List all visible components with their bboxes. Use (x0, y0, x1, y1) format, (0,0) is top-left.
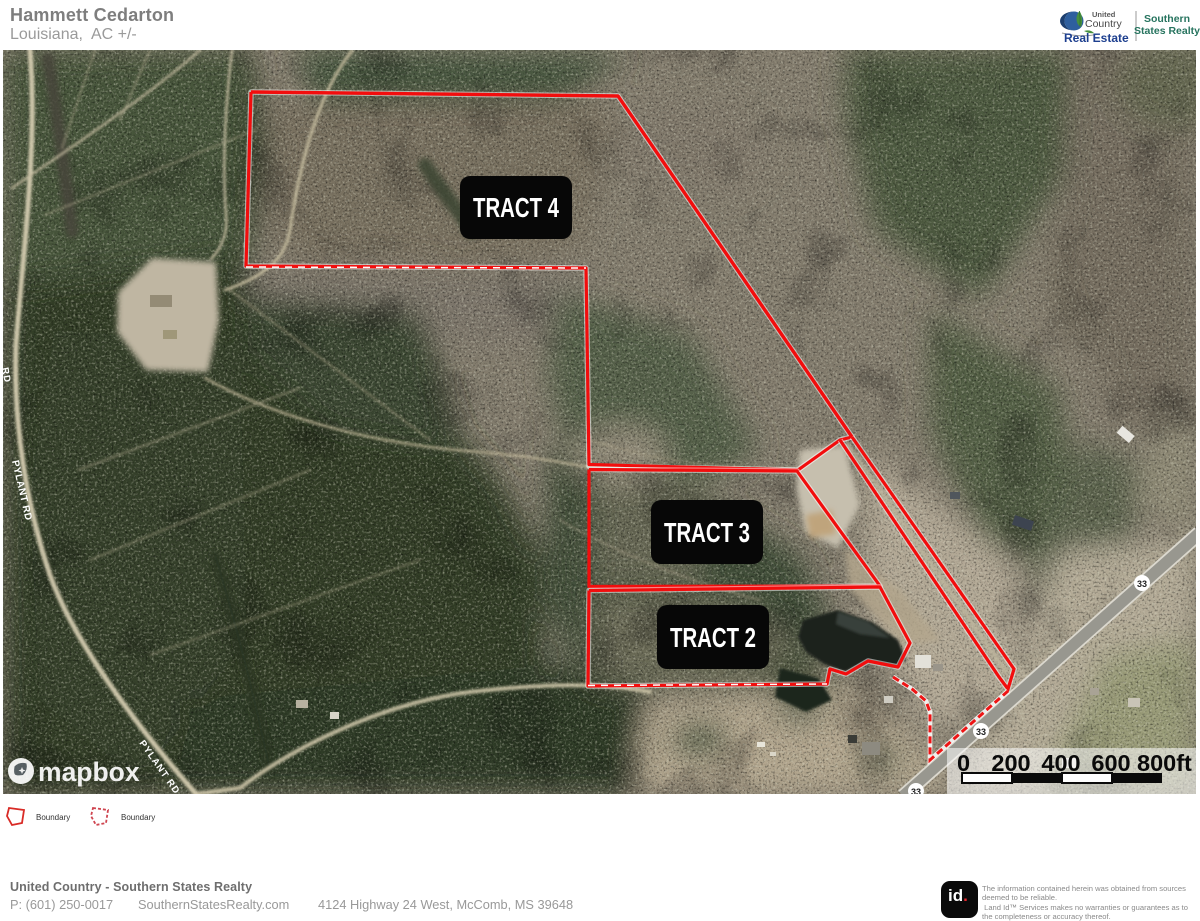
svg-text:33: 33 (911, 787, 921, 794)
svg-text:TRACT 4: TRACT 4 (473, 192, 559, 223)
svg-text:800ft: 800ft (1137, 750, 1192, 776)
svg-text:33: 33 (1137, 579, 1147, 589)
svg-text:33: 33 (976, 727, 986, 737)
svg-text:Southern: Southern (1144, 13, 1190, 25)
svg-text:RD: RD (3, 367, 13, 384)
svg-text:mapbox: mapbox (38, 757, 140, 787)
svg-text:Real Estate: Real Estate (1064, 31, 1129, 45)
svg-text:States Realty: States Realty (1134, 25, 1200, 37)
svg-text:TRACT 2: TRACT 2 (670, 622, 756, 653)
svg-text:Boundary: Boundary (36, 813, 70, 822)
svg-text:Country: Country (1085, 18, 1123, 30)
svg-text:TRACT 3: TRACT 3 (664, 517, 750, 548)
svg-text:Boundary: Boundary (121, 813, 155, 822)
